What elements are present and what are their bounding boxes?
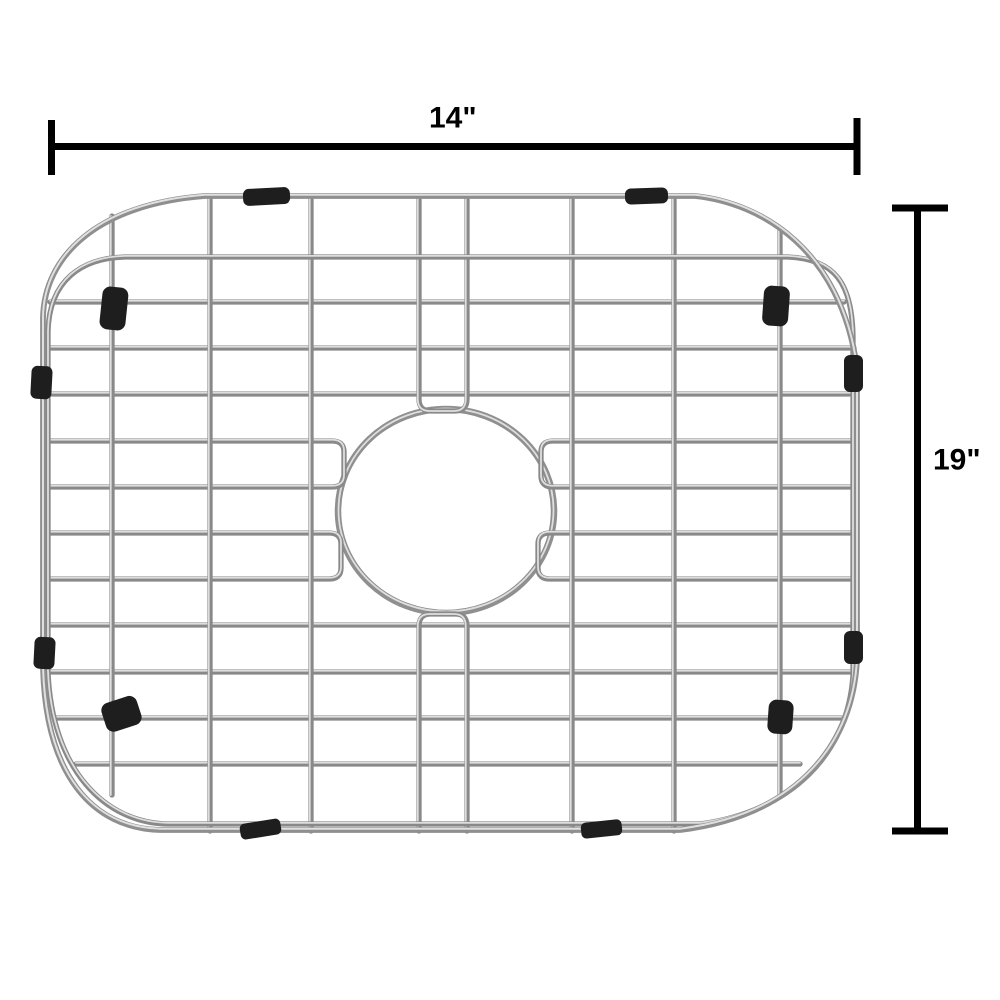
svg-text:14": 14" <box>429 102 477 135</box>
svg-text:19": 19" <box>933 444 981 477</box>
